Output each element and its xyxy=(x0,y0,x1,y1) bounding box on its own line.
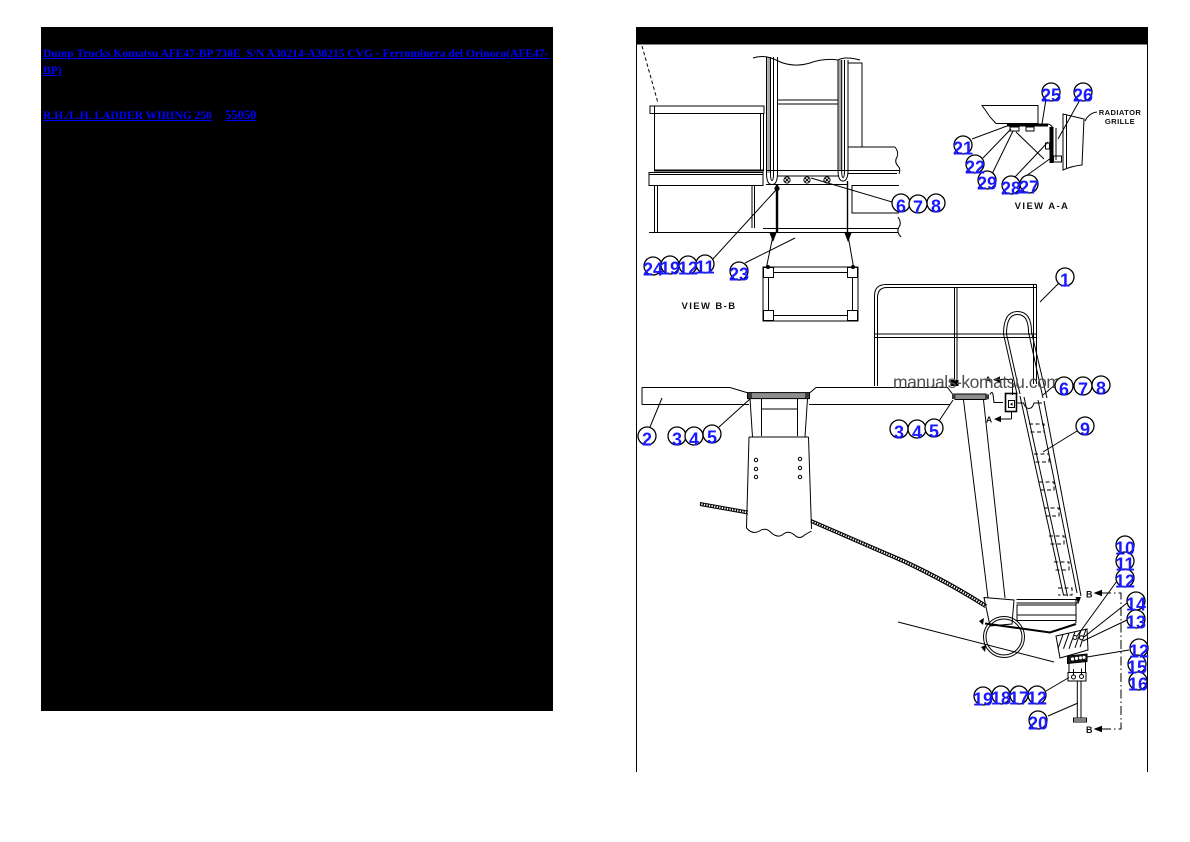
svg-text:12: 12 xyxy=(1027,689,1047,709)
svg-text:13: 13 xyxy=(1126,613,1146,633)
svg-text:5: 5 xyxy=(929,422,939,442)
svg-text:B: B xyxy=(1086,590,1093,600)
svg-text:VIEW B-B: VIEW B-B xyxy=(681,301,736,312)
svg-text:4: 4 xyxy=(689,430,699,450)
svg-text:B: B xyxy=(1086,725,1093,735)
svg-text:8: 8 xyxy=(1096,379,1106,399)
svg-text:3: 3 xyxy=(894,423,904,443)
svg-text:7: 7 xyxy=(913,198,923,218)
svg-text:25: 25 xyxy=(1041,86,1061,106)
svg-text:11: 11 xyxy=(695,258,714,278)
svg-text:6: 6 xyxy=(1059,380,1069,400)
svg-text:8: 8 xyxy=(931,197,941,217)
svg-text:6: 6 xyxy=(896,197,906,217)
svg-text:23: 23 xyxy=(729,265,749,285)
svg-text:5: 5 xyxy=(707,428,717,448)
svg-text:A: A xyxy=(986,415,992,425)
svg-text:16: 16 xyxy=(1128,675,1148,695)
svg-text:21: 21 xyxy=(953,139,973,159)
svg-text:manuals-komatsu.com: manuals-komatsu.com xyxy=(893,372,1060,392)
svg-text:20: 20 xyxy=(1028,714,1048,734)
svg-text:9: 9 xyxy=(1080,420,1090,440)
svg-text:1: 1 xyxy=(1060,271,1070,291)
svg-text:VIEW A-A: VIEW A-A xyxy=(1015,201,1070,212)
svg-text:29: 29 xyxy=(977,174,997,194)
svg-text:GRILLE: GRILLE xyxy=(1105,117,1135,126)
svg-text:12: 12 xyxy=(1115,572,1135,592)
svg-text:RADIATOR: RADIATOR xyxy=(1099,108,1142,117)
svg-text:4: 4 xyxy=(912,423,922,443)
svg-text:3: 3 xyxy=(672,430,682,450)
svg-text:14: 14 xyxy=(1126,595,1146,615)
svg-text:2: 2 xyxy=(642,430,652,450)
svg-text:7: 7 xyxy=(1078,380,1088,400)
svg-text:27: 27 xyxy=(1019,178,1039,198)
svg-text:26: 26 xyxy=(1073,86,1093,106)
